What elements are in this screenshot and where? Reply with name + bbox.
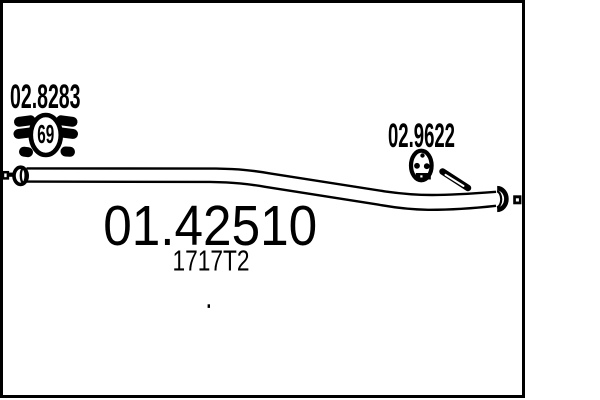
svg-text:1717T2: 1717T2 xyxy=(173,246,250,278)
svg-text:02.8283: 02.8283 xyxy=(10,78,81,116)
svg-text:69: 69 xyxy=(37,119,54,149)
